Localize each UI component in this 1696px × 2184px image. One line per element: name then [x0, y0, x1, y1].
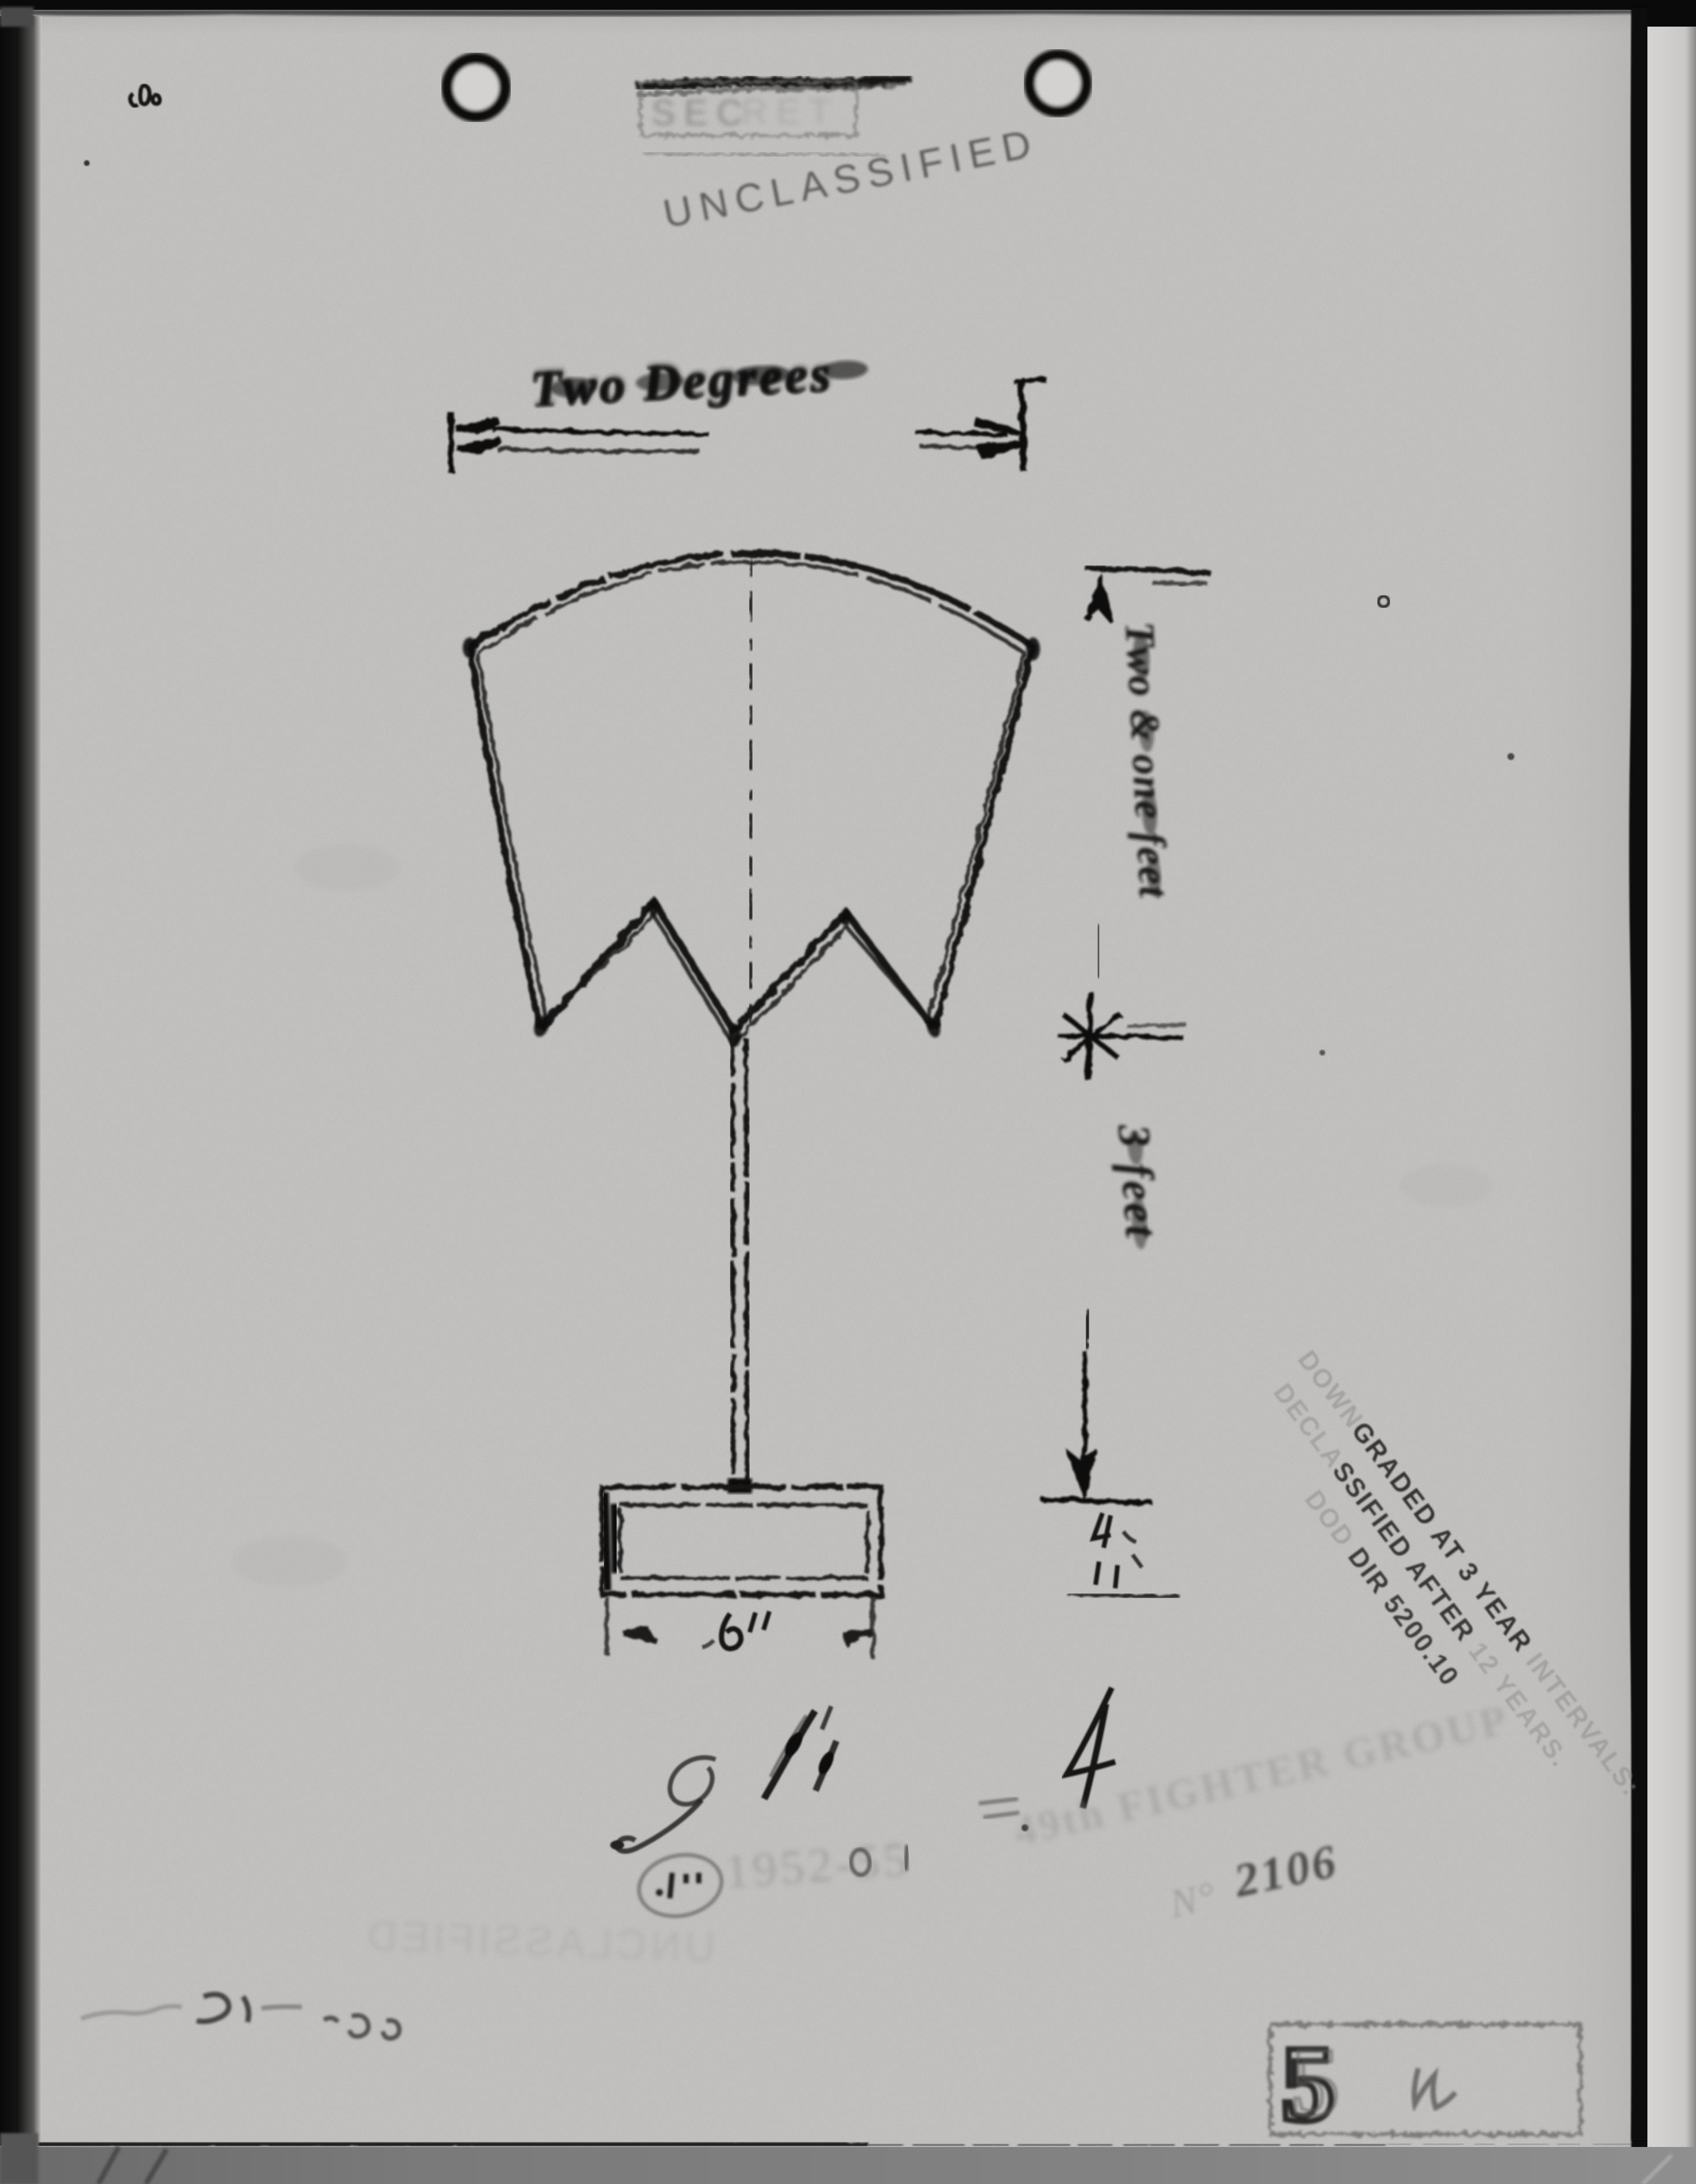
- svg-text:RET: RET: [742, 92, 839, 132]
- svg-text:5: 5: [1291, 2028, 1340, 2136]
- svg-text:SEC: SEC: [651, 93, 751, 133]
